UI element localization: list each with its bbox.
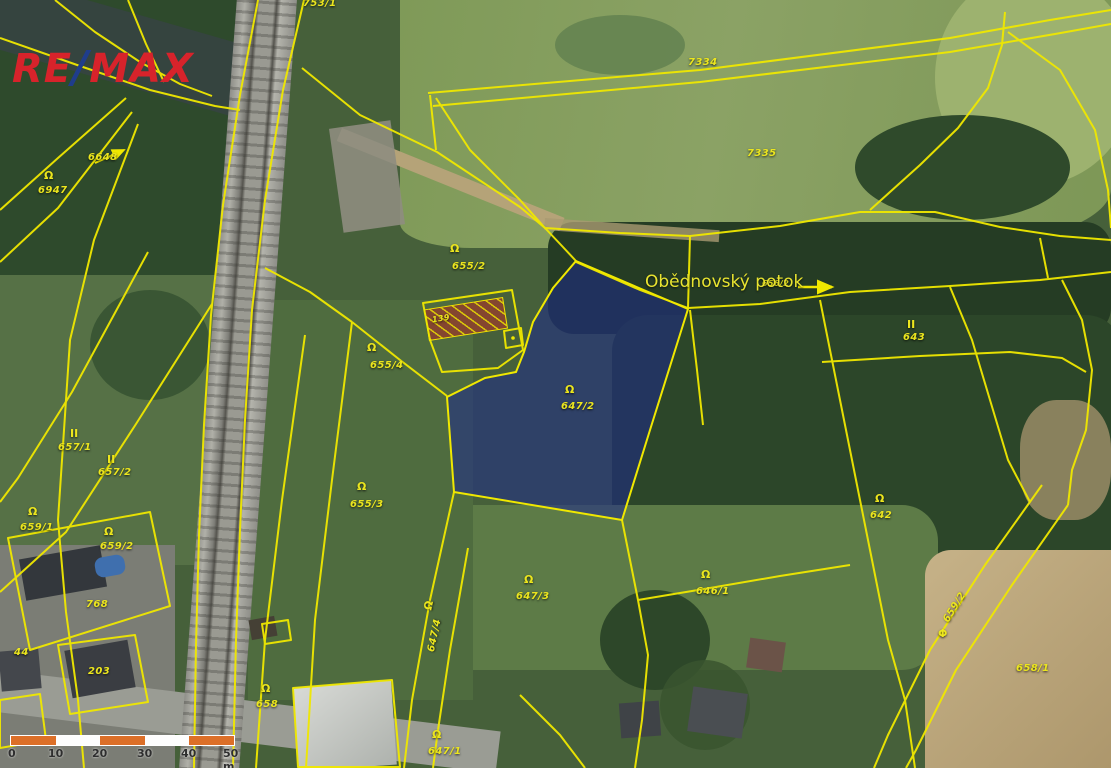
parcel-label-7334: 7334 (688, 57, 717, 68)
remax-logo-re: RE (12, 46, 72, 92)
parcel-label-647-1: 647/1 (428, 746, 461, 757)
grassland-symbol-icon: Ω (357, 481, 366, 492)
parcel-label-655-3: 655/3 (350, 499, 383, 510)
grassland-symbol-icon: Ω (104, 526, 113, 537)
grassland-symbol-icon: Ω (367, 342, 376, 353)
scale-segment (56, 736, 101, 745)
parcel-label-7335: 7335 (747, 148, 776, 159)
scale-tick: 20 (92, 747, 107, 760)
arable-symbol-icon: II (107, 454, 115, 465)
parcel-label-753-1: 753/1 (303, 0, 336, 9)
scale-tick: 0 (8, 747, 16, 760)
scale-bar: 0 10 20 30 40 50 m (10, 735, 235, 761)
parcel-label-44: 44 (14, 647, 29, 658)
stream-name-label: Obědnovský potok (645, 272, 803, 292)
arable-symbol-icon: II (70, 428, 78, 439)
scale-bar-ticks: 0 10 20 30 40 50 m (10, 747, 235, 761)
parcel-label-659-2: 659/2 (100, 541, 133, 552)
grassland-symbol-icon: Ω (565, 384, 574, 395)
cadastral-lines-layer (0, 0, 1111, 768)
parcel-label-6947: 6947 (38, 185, 67, 196)
scale-tick: 10 (48, 747, 63, 760)
grassland-symbol-icon: Ω (450, 243, 459, 254)
parcel-label-203: 203 (88, 666, 110, 677)
parcel-label-658-1: 658/1 (1016, 663, 1049, 674)
cadastral-aerial-map: 753/1 7334 7335 6648 Ω 6947 Ω 655/2 Ω 65… (0, 0, 1111, 768)
scale-segment (145, 736, 190, 745)
scale-segment (100, 736, 145, 745)
remax-logo-slash: / (72, 42, 89, 93)
parcel-label-647-3: 647/3 (516, 591, 549, 602)
pipe-symbol-icon: Φ (938, 628, 947, 639)
parcel-label-642: 642 (870, 510, 892, 521)
parcel-label-659-1: 659/1 (20, 522, 53, 533)
grassland-symbol-icon: Ω (432, 729, 441, 740)
arable-symbol-icon: II (907, 319, 915, 330)
scale-segment (11, 736, 56, 745)
grassland-symbol-icon: Ω (28, 506, 37, 517)
scale-segment (189, 736, 234, 745)
parcel-label-657-1: 657/1 (58, 442, 91, 453)
scale-tick: 30 (137, 747, 152, 760)
remax-logo: RE/MAX (12, 42, 194, 93)
grassland-symbol-icon: Ω (422, 600, 435, 611)
scale-tick: 50 m (223, 747, 238, 768)
parcel-label-646-1: 646/1 (696, 586, 729, 597)
remax-logo-max: MAX (89, 46, 194, 92)
grassland-symbol-icon: Ω (875, 493, 884, 504)
parcel-label-657-2: 657/2 (98, 467, 131, 478)
scale-tick: 40 (181, 747, 196, 760)
parcel-label-647-2: 647/2 (561, 401, 594, 412)
grassland-symbol-icon: Ω (701, 569, 710, 580)
parcel-label-643: 643 (903, 332, 925, 343)
parcel-label-655-2: 655/2 (452, 261, 485, 272)
grassland-symbol-icon: Ω (261, 683, 270, 694)
parcel-label-768: 768 (86, 599, 108, 610)
parcel-label-655-4: 655/4 (370, 360, 403, 371)
parcel-label-6648: 6648 (88, 152, 117, 163)
grassland-symbol-icon: Ω (524, 574, 533, 585)
annex-point (511, 336, 515, 340)
scale-bar-segments (10, 735, 235, 746)
grassland-symbol-icon: Ω (44, 170, 53, 181)
parcel-label-658: 658 (256, 699, 278, 710)
